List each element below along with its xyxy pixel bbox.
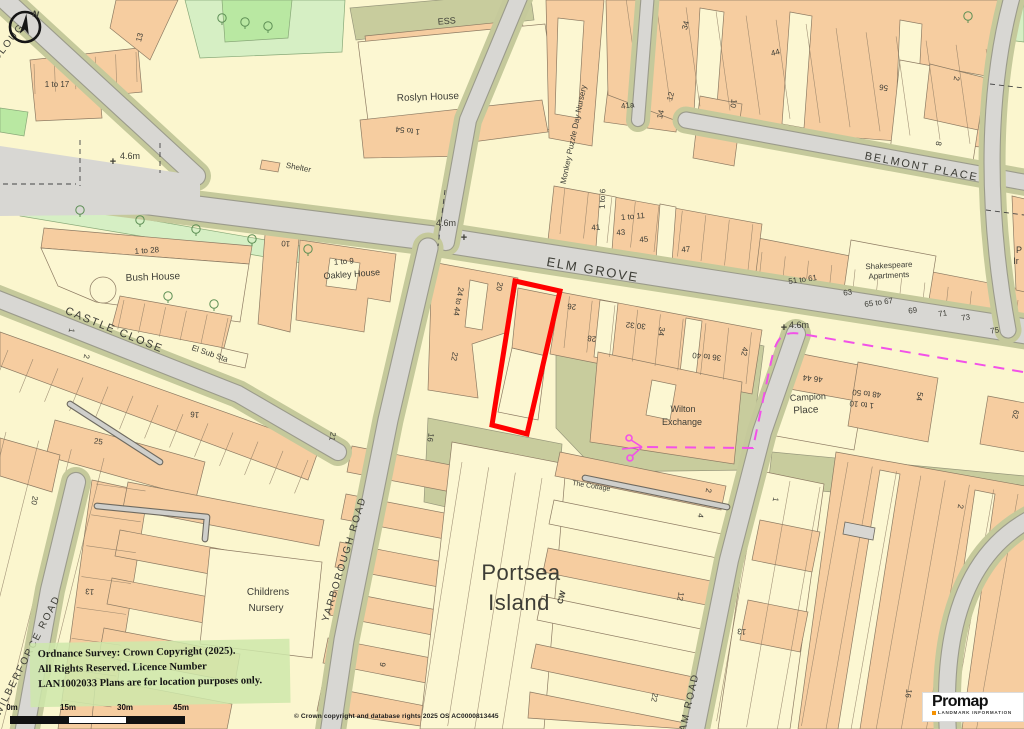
- map-label: Bush House: [125, 271, 180, 284]
- building: [528, 692, 690, 729]
- map-label: 63: [843, 287, 854, 297]
- scale-label: 15m: [60, 703, 76, 712]
- map-label: 26: [566, 301, 576, 311]
- map-label: 41a: [620, 100, 635, 111]
- map-label: 1 to 9: [334, 256, 355, 266]
- green-area: [0, 108, 28, 136]
- map-label: 1 to 6: [598, 188, 608, 209]
- map-label: Campion: [790, 391, 827, 403]
- map-label: 13: [84, 586, 94, 596]
- map-label: +: [781, 322, 787, 334]
- map-label: 1 to 28: [134, 245, 160, 256]
- map-label: 43: [616, 228, 626, 238]
- map-label: Nursery: [248, 603, 283, 614]
- building: [260, 160, 280, 172]
- license-box: Ordnance Survey: Crown Copyright (2025).…: [29, 639, 290, 708]
- road-surface: [0, 0, 196, 176]
- map-label: 56: [878, 82, 889, 92]
- map-viewport[interactable]: ELM GROVEBELMONT PLACECASTLE CLOSEYARBOR…: [0, 0, 1024, 729]
- scale-label: 45m: [173, 703, 189, 712]
- scale-segment: [11, 717, 69, 723]
- scale-label: 30m: [117, 703, 133, 712]
- map-label: 4.6m: [436, 218, 456, 228]
- map-label: Childrens: [247, 587, 289, 598]
- map-canvas[interactable]: ELM GROVEBELMONT PLACECASTLE CLOSEYARBOR…: [0, 0, 1024, 729]
- map-label: 10: [280, 239, 290, 249]
- map-label: 4: [696, 512, 706, 518]
- logo-orange-dot-icon: [932, 711, 936, 715]
- promap-logo: Promap LANDMARK INFORMATION: [922, 692, 1024, 722]
- scale-segment: [69, 717, 126, 723]
- green-area: [222, 0, 292, 42]
- map-label: 4.6m: [789, 320, 809, 330]
- map-label: 73: [961, 312, 972, 322]
- map-label: 20: [29, 495, 40, 506]
- map-label: 28: [586, 333, 596, 343]
- map-label: Portsea: [481, 560, 561, 585]
- map-label: 41: [591, 223, 601, 233]
- building: [549, 500, 722, 558]
- map-label: Place: [793, 404, 819, 416]
- map-label: +: [461, 232, 467, 244]
- map-label: 12: [675, 591, 686, 602]
- map-label: P: [1016, 245, 1022, 255]
- map-label: 47: [681, 245, 691, 255]
- promap-tagline: LANDMARK INFORMATION: [938, 710, 1012, 716]
- scale-label: 0m: [6, 703, 18, 712]
- map-label: Ir: [1013, 256, 1019, 266]
- map-label: 2: [82, 353, 92, 359]
- map-label: 16: [189, 409, 199, 419]
- map-label: Roslyn House: [397, 91, 460, 104]
- map-label: +: [110, 156, 116, 168]
- promap-brand: Promap: [932, 693, 1023, 710]
- building: [980, 396, 1024, 452]
- building: [531, 644, 698, 702]
- map-label: 1 to 17: [45, 80, 70, 89]
- os-copyright-credit: © Crown copyright and database rights 20…: [294, 713, 499, 720]
- map-label: 4.6m: [120, 151, 140, 161]
- map-label: Island: [488, 590, 550, 615]
- building: [1012, 196, 1024, 292]
- building: [543, 548, 716, 606]
- map-label: ESS: [437, 15, 456, 27]
- building: [90, 277, 116, 303]
- map-label: 75: [990, 325, 1001, 335]
- map-label: 25: [93, 436, 104, 446]
- map-label: Exchange: [662, 417, 702, 427]
- map-label: 22: [649, 692, 660, 703]
- scale-bar: 0m 15m 30m 45m: [0, 703, 200, 729]
- scale-bar-segments: [10, 716, 185, 724]
- map-label: Wilton: [670, 404, 695, 414]
- map-label: 69: [908, 305, 919, 315]
- map-label: Shelter: [285, 161, 312, 175]
- map-label: 71: [938, 308, 949, 318]
- map-label: 13: [736, 626, 746, 636]
- scale-segment: [126, 717, 184, 723]
- map-label: 45: [639, 235, 649, 245]
